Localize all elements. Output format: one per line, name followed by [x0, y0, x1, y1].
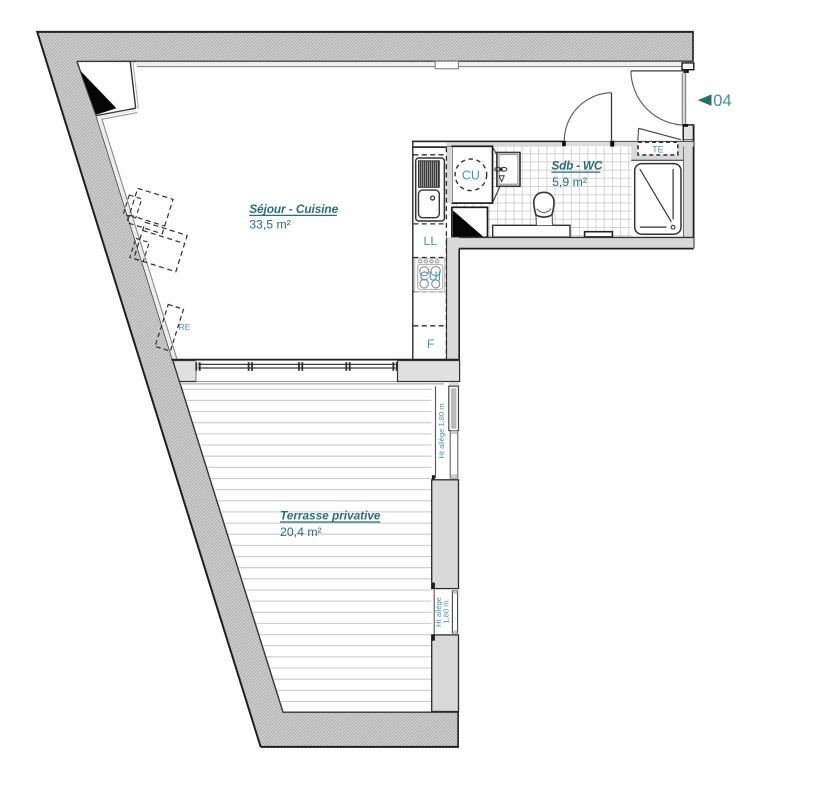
svg-text:Sdb - WC: Sdb - WC	[551, 159, 602, 173]
svg-text:TE: TE	[652, 145, 663, 155]
svg-text:CU: CU	[462, 168, 480, 182]
svg-text:CUI: CUI	[420, 270, 442, 284]
svg-text:RE: RE	[179, 322, 191, 332]
svg-text:Séjour - Cuisine: Séjour - Cuisine	[249, 202, 338, 216]
svg-text:33,5 m²: 33,5 m²	[249, 218, 291, 232]
svg-text:Terrasse privative: Terrasse privative	[280, 508, 381, 522]
svg-text:LL: LL	[424, 234, 438, 248]
svg-text:Ht allège 1,80 m: Ht allège 1,80 m	[437, 403, 446, 458]
svg-text:04: 04	[713, 92, 731, 110]
svg-text:5,9 m²: 5,9 m²	[552, 175, 587, 189]
svg-text:20,4 m²: 20,4 m²	[280, 525, 322, 539]
svg-text:F: F	[427, 337, 435, 351]
svg-text:1,80 m: 1,80 m	[441, 600, 450, 623]
